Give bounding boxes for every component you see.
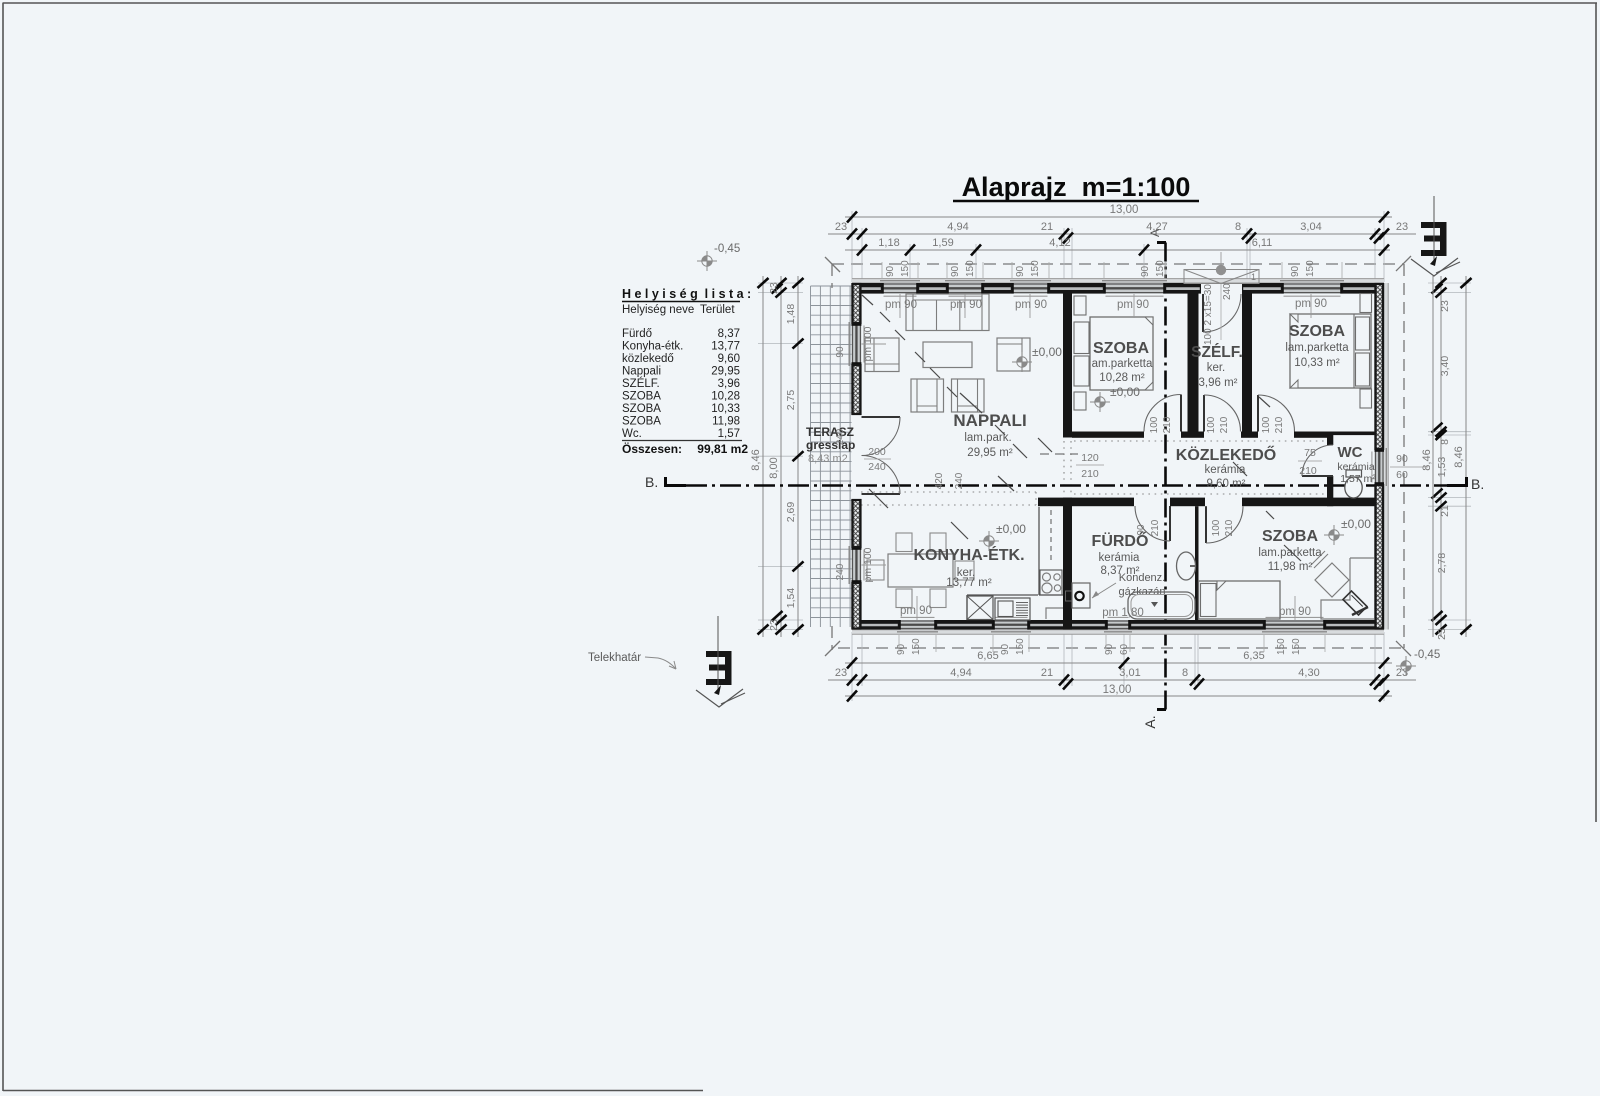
svg-text:75: 75 (1304, 447, 1316, 459)
svg-text:90: 90 (1396, 453, 1408, 465)
svg-text:210: 210 (1274, 416, 1285, 433)
svg-text:90: 90 (1000, 643, 1011, 655)
svg-text:SZOBA: SZOBA (622, 403, 661, 415)
svg-text:pm 90: pm 90 (885, 299, 917, 311)
svg-text:13,00: 13,00 (1110, 204, 1139, 216)
svg-text:3,40: 3,40 (1439, 356, 1451, 377)
svg-text:3,96: 3,96 (718, 378, 740, 390)
svg-text:99,81 m2: 99,81 m2 (697, 442, 748, 456)
svg-text:KÖZLEKEDŐ: KÖZLEKEDŐ (1176, 445, 1276, 464)
svg-text:9,60: 9,60 (718, 353, 740, 365)
svg-text:Fürdő: Fürdő (622, 328, 652, 340)
svg-text:150: 150 (1291, 638, 1302, 655)
svg-text:150: 150 (1030, 260, 1041, 277)
svg-text:150: 150 (1305, 260, 1316, 277)
svg-text:21: 21 (1041, 221, 1053, 233)
svg-text:90: 90 (1140, 265, 1151, 277)
svg-text:6,65: 6,65 (977, 650, 998, 662)
svg-text:3,01: 3,01 (1119, 667, 1140, 679)
svg-text:8,37 m²: 8,37 m² (1101, 565, 1140, 577)
svg-text:8: 8 (1439, 439, 1451, 445)
svg-text:közlekedő: közlekedő (622, 353, 674, 365)
svg-text:21: 21 (1041, 667, 1053, 679)
svg-text:pm 100: pm 100 (862, 547, 874, 582)
svg-text:Telekhatár: Telekhatár (588, 652, 641, 664)
svg-text:240: 240 (835, 428, 846, 445)
svg-text:100 2 x15=30: 100 2 x15=30 (1203, 284, 1214, 345)
svg-text:SZOBA: SZOBA (1289, 323, 1345, 340)
svg-text:60: 60 (1119, 643, 1130, 655)
svg-text:1,54: 1,54 (785, 588, 797, 609)
svg-text:Konyha-étk.: Konyha-étk. (622, 341, 683, 353)
svg-text:±0,00: ±0,00 (1341, 517, 1371, 531)
svg-text:1,18: 1,18 (878, 237, 899, 249)
svg-text:6,35: 6,35 (1243, 650, 1264, 662)
svg-text:150: 150 (1276, 638, 1287, 655)
svg-text:8,46: 8,46 (1421, 449, 1433, 470)
svg-text:210: 210 (1224, 519, 1235, 536)
svg-text:A.: A. (1142, 715, 1158, 728)
svg-text:±0,00: ±0,00 (996, 522, 1026, 536)
svg-text:210: 210 (1219, 416, 1230, 433)
svg-text:FÜRDŐ: FÜRDŐ (1092, 531, 1149, 550)
svg-text:NAPPALI: NAPPALI (953, 411, 1026, 430)
svg-text:A: A (1148, 229, 1162, 237)
svg-text:kerámia: kerámia (1337, 461, 1375, 473)
svg-text:8: 8 (1182, 667, 1188, 679)
svg-text:90: 90 (885, 265, 896, 277)
svg-text:1: 1 (1251, 272, 1256, 282)
svg-text:-0,45: -0,45 (714, 243, 740, 255)
svg-text:240: 240 (1222, 283, 1233, 300)
svg-text:1,48: 1,48 (785, 304, 797, 325)
svg-text:am.parketta: am.parketta (1092, 358, 1153, 370)
svg-text:11,98: 11,98 (712, 416, 740, 428)
svg-text:11,98 m²: 11,98 m² (1268, 561, 1313, 573)
svg-text:210: 210 (1150, 519, 1161, 536)
svg-text:13,00: 13,00 (1103, 684, 1132, 696)
svg-text:90: 90 (835, 346, 846, 358)
svg-text:23: 23 (768, 282, 780, 294)
svg-text:100: 100 (1261, 416, 1272, 433)
svg-text:H e l y i s é g l i s t a :: H e l y i s é g l i s t a : (622, 287, 751, 301)
svg-text:Nappali: Nappali (622, 366, 661, 378)
svg-text:pm 100: pm 100 (862, 326, 874, 361)
svg-text:21: 21 (1439, 505, 1451, 517)
svg-text:WC: WC (1338, 444, 1363, 461)
svg-text:10,28 m²: 10,28 m² (1099, 372, 1145, 384)
svg-text:90: 90 (1015, 265, 1026, 277)
svg-text:150: 150 (900, 260, 911, 277)
svg-text:pm 90: pm 90 (900, 605, 932, 617)
svg-text:Összesen:: Összesen: (622, 441, 682, 456)
svg-text:SZOBA: SZOBA (1093, 340, 1149, 357)
svg-text:420: 420 (934, 472, 945, 489)
svg-text:210: 210 (1299, 465, 1317, 477)
svg-text:90: 90 (1290, 265, 1301, 277)
svg-text:200: 200 (868, 446, 886, 458)
svg-text:SZOBA: SZOBA (622, 391, 661, 403)
svg-text:lam.parketta: lam.parketta (1258, 547, 1322, 559)
svg-text:4,12: 4,12 (1049, 237, 1070, 249)
svg-text:13,77 m²: 13,77 m² (946, 577, 992, 589)
svg-text:23: 23 (1439, 300, 1451, 312)
svg-text:2,78: 2,78 (1436, 553, 1448, 574)
svg-text:-0,45: -0,45 (1414, 649, 1440, 661)
svg-text:90: 90 (896, 643, 907, 655)
svg-text:Terület: Terület (700, 304, 735, 316)
svg-text:±0,00: ±0,00 (1032, 345, 1062, 359)
svg-text:150: 150 (1155, 260, 1166, 277)
svg-text:60: 60 (1396, 469, 1408, 481)
svg-text:1,57: 1,57 (718, 428, 740, 440)
svg-text:240: 240 (868, 461, 886, 473)
svg-text:23: 23 (1436, 628, 1448, 640)
svg-text:pm 90: pm 90 (1117, 299, 1149, 311)
svg-text:29,95 m²: 29,95 m² (967, 447, 1013, 459)
svg-text:2,69: 2,69 (785, 502, 797, 523)
svg-text:Alaprajz m=1:100: Alaprajz m=1:100 (962, 172, 1191, 202)
svg-text:ker.: ker. (1207, 362, 1226, 374)
svg-text:13,77: 13,77 (711, 341, 740, 353)
svg-text:1,53: 1,53 (1436, 457, 1448, 478)
svg-text:B.: B. (645, 474, 658, 490)
svg-text:8,37: 8,37 (718, 328, 740, 340)
svg-text:B.: B. (1471, 476, 1484, 492)
svg-text:240: 240 (954, 472, 965, 489)
svg-text:pm 90: pm 90 (1295, 298, 1327, 310)
svg-text:SZÉLF.: SZÉLF. (1191, 344, 1243, 361)
svg-text:1,57 m²: 1,57 m² (1340, 473, 1376, 485)
svg-text:gresslap: gresslap (806, 438, 855, 452)
svg-text:210: 210 (1162, 416, 1173, 433)
svg-text:100: 100 (1206, 416, 1217, 433)
svg-text:3,04: 3,04 (1300, 221, 1321, 233)
svg-text:29,95: 29,95 (711, 366, 740, 378)
svg-text:8,43 m2: 8,43 m2 (808, 453, 848, 465)
svg-text:23: 23 (768, 619, 780, 631)
svg-text:pm 90: pm 90 (1015, 299, 1047, 311)
svg-text:1,59: 1,59 (932, 237, 953, 249)
svg-text:10,28: 10,28 (711, 391, 740, 403)
svg-text:100: 100 (1211, 519, 1222, 536)
svg-text:lam.parketta: lam.parketta (1285, 342, 1349, 354)
svg-text:8,46: 8,46 (1453, 446, 1465, 467)
svg-text:23: 23 (835, 667, 847, 679)
svg-text:150: 150 (911, 638, 922, 655)
svg-text:kerámia: kerámia (1205, 464, 1247, 476)
svg-text:90: 90 (950, 265, 961, 277)
svg-text:100: 100 (1149, 416, 1160, 433)
svg-text:KONYHA-ÉTK.: KONYHA-ÉTK. (913, 545, 1024, 564)
svg-text:6,11: 6,11 (1252, 237, 1273, 249)
svg-text:4,94: 4,94 (950, 667, 971, 679)
svg-text:120: 120 (1081, 452, 1099, 464)
svg-text:pm 90: pm 90 (950, 299, 982, 311)
svg-text:150: 150 (1015, 638, 1026, 655)
svg-text:4,30: 4,30 (1298, 667, 1319, 679)
svg-text:150: 150 (965, 260, 976, 277)
svg-text:10,33: 10,33 (711, 403, 740, 415)
svg-text:23: 23 (835, 221, 847, 233)
svg-text:SZOBA: SZOBA (622, 416, 661, 428)
svg-text:8: 8 (1235, 221, 1241, 233)
svg-text:23: 23 (1396, 221, 1408, 233)
svg-text:8,46: 8,46 (750, 449, 762, 470)
svg-text:pm 90: pm 90 (1279, 606, 1311, 618)
svg-text:4,94: 4,94 (947, 221, 968, 233)
svg-text:kerámia: kerámia (1099, 552, 1141, 564)
svg-text:2,75: 2,75 (785, 390, 797, 411)
svg-text:TERASZ: TERASZ (806, 425, 854, 439)
svg-text:240: 240 (835, 563, 846, 580)
svg-text:Wc.: Wc. (622, 428, 642, 440)
svg-text:±0,00: ±0,00 (1110, 385, 1140, 399)
svg-text:3,96 m²: 3,96 m² (1199, 377, 1238, 389)
svg-text:pm 1,80: pm 1,80 (1102, 607, 1144, 619)
svg-text:210: 210 (1081, 468, 1099, 480)
svg-text:9,60 m²: 9,60 m² (1207, 478, 1246, 490)
svg-text:Helyiség neve: Helyiség neve (622, 304, 694, 316)
svg-text:8,00: 8,00 (768, 457, 780, 478)
svg-text:SZÉLF.: SZÉLF. (622, 377, 660, 390)
svg-text:SZOBA: SZOBA (1262, 528, 1318, 545)
svg-text:10,33 m²: 10,33 m² (1294, 357, 1340, 369)
